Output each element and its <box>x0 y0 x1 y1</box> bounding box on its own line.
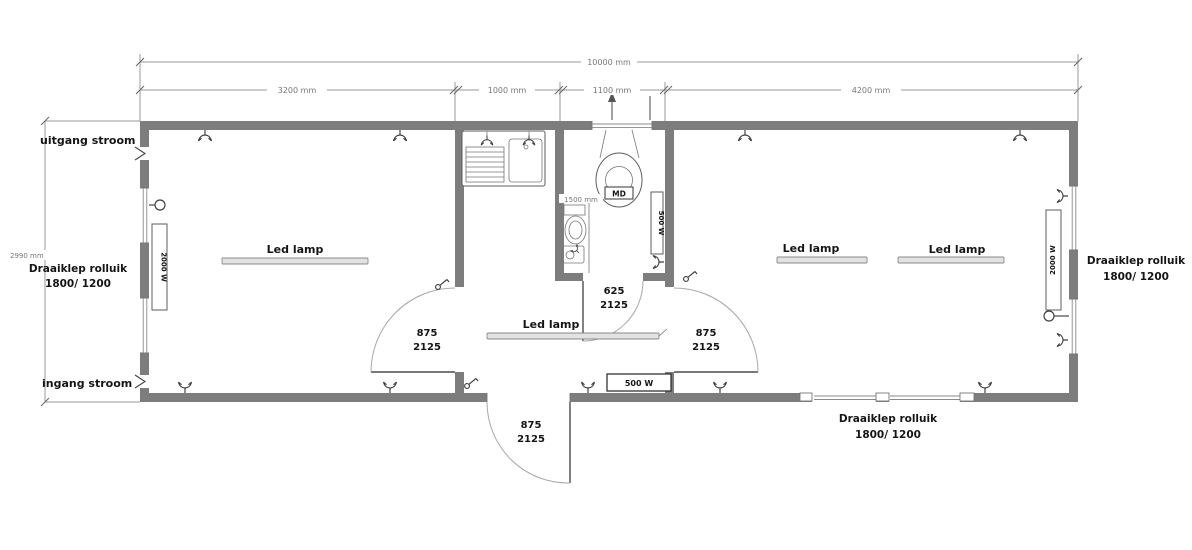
shutter-left-line2: 1800/ 1200 <box>45 278 111 290</box>
ceiling-point-icon <box>1014 130 1027 141</box>
entrance-opening <box>487 392 570 403</box>
dim-left-room: 3200 mm <box>278 86 317 95</box>
wall-socket-icon <box>384 382 397 393</box>
door-entrance-width: 875 <box>521 420 542 431</box>
wc-cistern <box>564 205 585 215</box>
led-strip <box>777 257 867 263</box>
door-toilet-width: 625 <box>604 286 625 297</box>
heater-toilet-label: 500 W <box>657 211 665 236</box>
vent-unit-label: MD <box>612 190 626 199</box>
heater-hall-label: 500 W <box>625 379 653 388</box>
door-right-width: 875 <box>696 328 717 339</box>
dim-kitchen: 1000 mm <box>488 86 527 95</box>
wall-socket-icon <box>714 382 727 393</box>
heater-right-label: 2000 W <box>1049 245 1057 275</box>
wall-toilet-bottom <box>555 273 583 281</box>
hand-basin <box>562 246 584 263</box>
door-entrance-height: 2125 <box>517 434 545 445</box>
switch-icon <box>155 200 165 210</box>
ceiling-point-icon <box>394 130 407 141</box>
led-label: Led lamp <box>523 318 580 331</box>
led-strip <box>487 333 659 339</box>
dim-total: 10000 mm <box>587 58 631 67</box>
dim-toilet: 1100 mm <box>593 86 632 95</box>
floorplan-canvas: 10000 mm 3200 mm 1000 mm 1100 mm 4200 mm… <box>0 0 1192 550</box>
door-toilet-height: 2125 <box>600 300 628 311</box>
led-label: Led lamp <box>929 243 986 256</box>
wall-socket-icon <box>1057 334 1068 347</box>
light-switch-icon <box>684 272 697 282</box>
wall-socket-icon <box>653 256 664 269</box>
wall-right-room <box>665 130 674 287</box>
led-label: Led lamp <box>783 242 840 255</box>
switch-icon <box>1044 311 1054 321</box>
shutter-bottom-line1: Draaiklep rolluik <box>839 413 938 425</box>
shutter-left-line1: Draaiklep rolluik <box>29 263 128 275</box>
door-right-height: 2125 <box>692 342 720 353</box>
power-in-label: ingang stroom <box>42 377 132 390</box>
door-left-width: 875 <box>417 328 438 339</box>
wc-bowl <box>565 216 586 244</box>
kitchen-counter <box>462 130 545 186</box>
led-strip <box>222 258 368 264</box>
floorplan-svg: 10000 mm 3200 mm 1000 mm 1100 mm 4200 mm… <box>0 0 1192 550</box>
wall-socket-icon <box>979 382 992 393</box>
wall-socket-icon <box>179 382 192 393</box>
power-out-label: uitgang stroom <box>40 134 136 147</box>
shutter-right-line2: 1800/ 1200 <box>1103 271 1169 283</box>
wall-socket-icon <box>1057 190 1068 203</box>
ceiling-point-icon <box>739 130 752 141</box>
wall-socket-icon <box>582 382 595 393</box>
light-switch-icon <box>465 379 478 389</box>
shutter-right-line1: Draaiklep rolluik <box>1087 255 1186 267</box>
dim-depth: 2990 mm <box>10 252 44 260</box>
ceiling-point-icon <box>199 130 212 141</box>
doors <box>371 281 758 483</box>
led-label: Led lamp <box>267 243 324 256</box>
led-strip <box>898 257 1004 263</box>
dimension-lines: 10000 mm 3200 mm 1000 mm 1100 mm 4200 mm… <box>8 54 1082 406</box>
toilet-room: MD 1500 mm <box>559 130 642 273</box>
heater-left-label: 2000 W <box>160 252 168 282</box>
door-left-height: 2125 <box>413 342 441 353</box>
shutter-bottom-line2: 1800/ 1200 <box>855 429 921 441</box>
dim-right-room: 4200 mm <box>852 86 891 95</box>
dim-toilet-inner: 1500 mm <box>564 196 598 204</box>
